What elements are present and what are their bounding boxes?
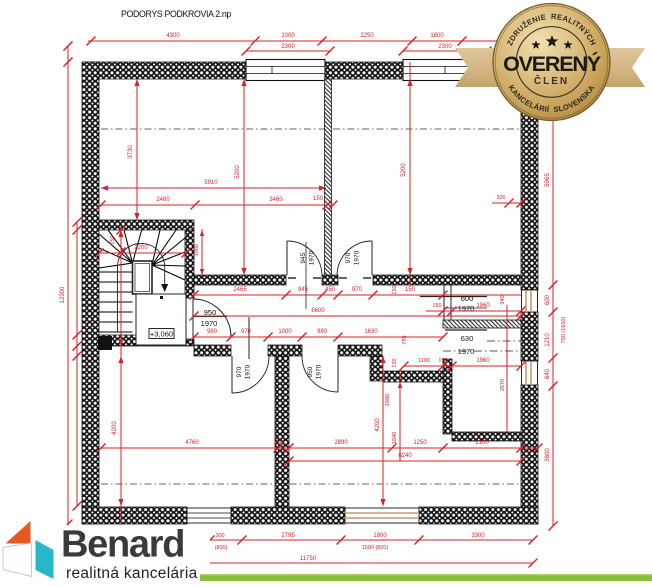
svg-text:PODORYS PODKROVIA 2.np: PODORYS PODKROVIA 2.np [121, 9, 231, 19]
svg-text:1800: 1800 [430, 33, 444, 39]
svg-text:2300: 2300 [281, 44, 295, 50]
svg-text:1250: 1250 [413, 440, 427, 446]
svg-text:+3,060: +3,060 [150, 330, 173, 339]
svg-text:970: 970 [236, 366, 243, 377]
svg-text:4200: 4200 [375, 418, 381, 432]
svg-text:5965: 5965 [545, 173, 551, 187]
svg-text:5200: 5200 [401, 163, 407, 177]
svg-text:1000: 1000 [278, 329, 292, 335]
svg-text:4300: 4300 [166, 33, 180, 39]
svg-text:ČLEN: ČLEN [534, 74, 569, 87]
svg-text:300: 300 [496, 195, 505, 201]
svg-text:3300: 3300 [471, 533, 485, 539]
svg-text:2250: 2250 [360, 33, 374, 39]
svg-text:250: 250 [110, 235, 116, 244]
svg-text:450: 450 [325, 287, 336, 293]
svg-text:1840: 1840 [392, 432, 398, 444]
svg-text:150: 150 [392, 285, 398, 294]
svg-text:750 (1650): 750 (1650) [561, 317, 567, 344]
svg-text:2100: 2100 [475, 440, 489, 446]
svg-text:1970: 1970 [201, 319, 218, 328]
svg-text:785: 785 [402, 335, 408, 344]
svg-text:5910: 5910 [204, 180, 218, 186]
svg-text:150: 150 [432, 303, 441, 309]
svg-text:1970: 1970 [354, 250, 361, 265]
svg-text:2795: 2795 [281, 533, 295, 539]
svg-text:1210: 1210 [545, 333, 551, 347]
svg-text:980: 980 [207, 329, 218, 335]
svg-text:970: 970 [352, 287, 363, 293]
svg-text:3460: 3460 [269, 197, 283, 203]
svg-text:945: 945 [298, 287, 309, 293]
svg-text:1630: 1630 [364, 329, 378, 335]
svg-text:150: 150 [438, 358, 447, 364]
svg-text:1970: 1970 [245, 364, 252, 379]
svg-text:1500 (800): 1500 (800) [362, 545, 389, 551]
svg-text:150: 150 [405, 287, 416, 293]
svg-text:Benard: Benard [61, 524, 184, 566]
svg-text:300: 300 [215, 533, 224, 539]
svg-text:OVERENÝ: OVERENÝ [503, 51, 601, 76]
svg-text:150: 150 [313, 196, 324, 202]
svg-text:3730: 3730 [128, 145, 134, 159]
svg-text:1970: 1970 [458, 347, 475, 356]
svg-text:1980: 1980 [385, 394, 391, 406]
svg-text:5200: 5200 [235, 165, 241, 179]
svg-text:640: 640 [545, 368, 551, 379]
svg-text:970: 970 [241, 329, 252, 335]
svg-text:realitná kancelária: realitná kancelária [66, 565, 198, 581]
svg-text:1800: 1800 [373, 533, 387, 539]
svg-text:(800): (800) [215, 545, 228, 551]
svg-text:630: 630 [461, 334, 474, 343]
svg-text:970: 970 [345, 252, 352, 263]
svg-text:1960: 1960 [476, 303, 490, 309]
svg-text:2670: 2670 [500, 379, 506, 391]
svg-text:2460: 2460 [156, 197, 170, 203]
svg-text:2890: 2890 [334, 440, 348, 446]
svg-text:1960: 1960 [194, 244, 200, 256]
svg-text:4200: 4200 [112, 421, 118, 435]
svg-text:1970: 1970 [458, 304, 475, 313]
svg-text:950: 950 [307, 366, 314, 377]
svg-text:11750: 11750 [300, 556, 317, 562]
svg-text:1100: 1100 [418, 358, 430, 364]
svg-text:150: 150 [392, 358, 398, 367]
svg-text:4760: 4760 [185, 440, 199, 446]
svg-text:2465: 2465 [233, 287, 247, 293]
svg-text:12300: 12300 [60, 286, 66, 303]
svg-text:600: 600 [545, 294, 551, 305]
svg-text:1970: 1970 [309, 250, 316, 265]
svg-text:2200: 2200 [134, 245, 148, 251]
svg-text:1970: 1970 [316, 364, 323, 379]
svg-text:1960: 1960 [476, 358, 490, 364]
svg-text:945: 945 [300, 252, 307, 263]
svg-text:980: 980 [317, 329, 328, 335]
svg-text:6600: 6600 [311, 308, 325, 314]
svg-text:2300: 2300 [438, 44, 452, 50]
svg-text:1000: 1000 [281, 33, 295, 39]
svg-text:940: 940 [500, 295, 506, 304]
svg-text:3600: 3600 [545, 448, 551, 462]
svg-text:150: 150 [273, 440, 284, 446]
